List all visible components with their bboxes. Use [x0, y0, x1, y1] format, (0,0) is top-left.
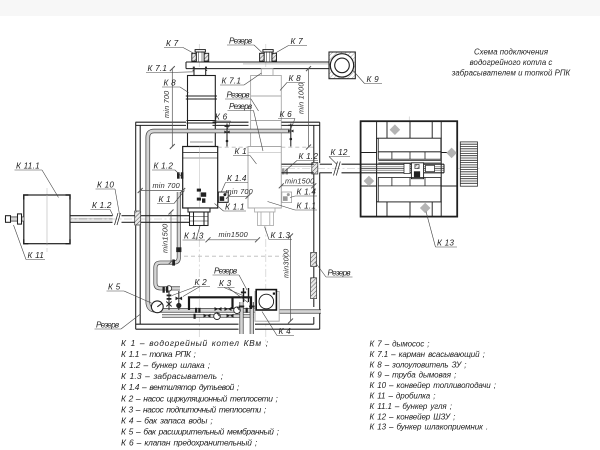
svg-text:К 3 – насос подпиточный тепл: К 3 – насос подпиточный теплосети ; — [121, 404, 267, 414]
svg-text:К 5 – бак расширительный мем: К 5 – бак расширительный мембранный ; — [121, 427, 280, 437]
svg-text:К 7.1: К 7.1 — [222, 77, 242, 86]
svg-text:Резерв: Резерв — [214, 267, 237, 276]
svg-text:Схема подключения: Схема подключения — [474, 48, 549, 57]
svg-text:К 8 – золоуловитель ЗУ ;: К 8 – золоуловитель ЗУ ; — [370, 360, 467, 369]
svg-text:К 2: К 2 — [195, 278, 208, 287]
svg-text:Резерв: Резерв — [328, 269, 351, 278]
svg-text:К 7.1: К 7.1 — [148, 64, 168, 73]
svg-text:К 1.1 – топка РПК ;: К 1.1 – топка РПК ; — [121, 349, 197, 359]
svg-text:К 11: К 11 — [28, 251, 45, 260]
svg-text:К 5: К 5 — [108, 283, 121, 292]
svg-text:min 700: min 700 — [226, 187, 253, 196]
svg-text:К 1.2: К 1.2 — [154, 162, 174, 171]
svg-text:забрасывателем и топкой РПК: забрасывателем и топкой РПК — [451, 69, 571, 78]
svg-text:К 10: К 10 — [97, 181, 114, 190]
svg-text:К 1.4: К 1.4 — [297, 188, 317, 197]
svg-text:водогрейного котла с: водогрейного котла с — [470, 58, 553, 67]
svg-text:К 2 – насос циркуляционный т: К 2 – насос циркуляционный теплосети ; — [121, 393, 279, 403]
svg-text:К 11.1 – бункер угля ;: К 11.1 – бункер угля ; — [370, 402, 452, 411]
svg-text:К 9: К 9 — [367, 75, 380, 84]
svg-text:К 4: К 4 — [279, 327, 292, 336]
svg-text:Резерв: Резерв — [227, 91, 250, 100]
svg-text:К 1.3 – забрасыватель ;: К 1.3 – забрасыватель ; — [121, 371, 224, 381]
svg-text:К 1.2: К 1.2 — [299, 152, 319, 161]
svg-text:К 7: К 7 — [291, 37, 304, 46]
svg-text:К 4 – бак запаса воды ;: К 4 – бак запаса воды ; — [121, 416, 213, 426]
svg-text:К 7 – дымосос ;: К 7 – дымосос ; — [370, 340, 430, 349]
svg-text:min1500: min1500 — [219, 230, 248, 239]
svg-text:К 1.4: К 1.4 — [227, 174, 247, 183]
svg-text:min3000: min3000 — [281, 249, 290, 278]
svg-text:К 8: К 8 — [289, 74, 302, 83]
svg-text:К 9 – труба дымовая ;: К 9 – труба дымовая ; — [370, 371, 457, 380]
svg-text:К 1.4 – вентилятор дутьевой: К 1.4 – вентилятор дутьевой ; — [121, 382, 240, 392]
svg-text:min1500: min1500 — [285, 176, 314, 185]
svg-text:К 7: К 7 — [166, 39, 179, 48]
svg-text:К 13 – бункер шлакоприемник: К 13 – бункер шлакоприемник . — [370, 423, 489, 432]
svg-text:К 1: К 1 — [235, 147, 247, 156]
svg-text:К 1.2 – бункер шлака ;: К 1.2 – бункер шлака ; — [121, 360, 211, 370]
svg-text:К 13: К 13 — [437, 239, 454, 248]
svg-text:К 6: К 6 — [215, 113, 228, 122]
svg-text:Резерв: Резерв — [96, 321, 119, 330]
svg-text:min 1000: min 1000 — [297, 82, 306, 114]
svg-text:К 10 – конвейер топливоподач: К 10 – конвейер топливоподачи ; — [370, 381, 496, 390]
svg-text:К 1.1: К 1.1 — [225, 203, 245, 212]
svg-text:min 700: min 700 — [162, 91, 171, 118]
svg-text:К 12: К 12 — [331, 148, 348, 157]
svg-text:К 11 – дробилка ;: К 11 – дробилка ; — [370, 392, 436, 401]
svg-text:К 1.3: К 1.3 — [271, 231, 291, 240]
svg-text:К 1 – водогрейный котел КВм: К 1 – водогрейный котел КВм ; — [121, 338, 269, 348]
svg-text:К 6: К 6 — [280, 110, 293, 119]
svg-text:К 1.3: К 1.3 — [184, 232, 204, 241]
svg-text:К 8: К 8 — [164, 79, 177, 88]
svg-text:min 700: min 700 — [153, 181, 180, 190]
svg-text:К 1.1: К 1.1 — [297, 202, 317, 211]
svg-text:К 12 – конвейер ШЗУ ;: К 12 – конвейер ШЗУ ; — [370, 412, 456, 421]
svg-text:К 1: К 1 — [159, 195, 171, 204]
svg-text:К 7.1 – карман всасывающий ;: К 7.1 – карман всасывающий ; — [370, 350, 485, 359]
svg-text:К 3: К 3 — [219, 279, 232, 288]
svg-text:Резерв: Резерв — [229, 37, 252, 46]
svg-text:К 6 – клапан предохранительн: К 6 – клапан предохранительный ; — [121, 438, 258, 448]
svg-text:min1500: min1500 — [161, 224, 170, 253]
svg-text:К 11.1: К 11.1 — [16, 162, 40, 171]
svg-text:Резерв: Резерв — [229, 102, 252, 111]
svg-text:К 1.2: К 1.2 — [92, 201, 112, 210]
